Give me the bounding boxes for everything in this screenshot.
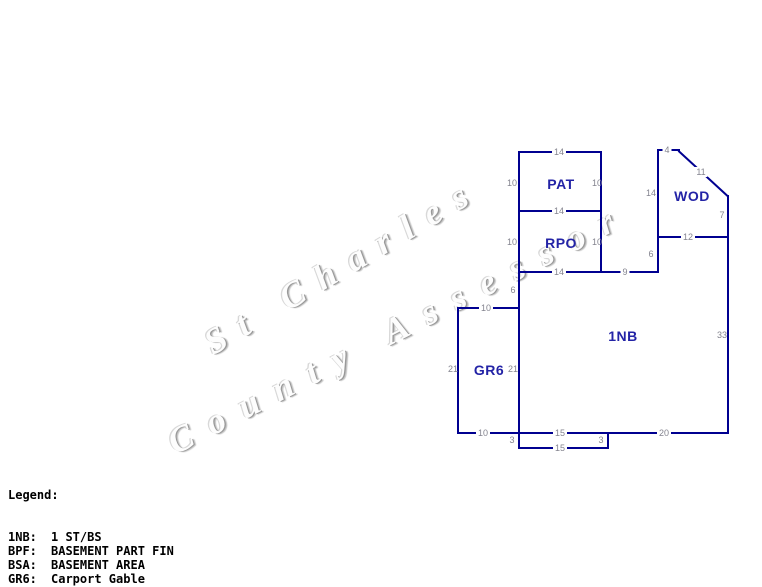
legend-row: BSA:BASEMENT AREA [8,558,174,572]
dimension-label: 10 [592,178,602,188]
legend-row: 1NB:1 ST/BS [8,530,174,544]
sketch-line [600,151,602,273]
legend-abbr: GR6: [8,572,51,586]
sketch-line [607,432,609,449]
area-label-gr6: GR6 [474,362,504,378]
legend: Legend: 1NB:1 ST/BSBPF:BASEMENT PART FIN… [8,460,174,587]
dimension-label: 21 [448,364,458,374]
legend-desc: 1 ST/BS [51,530,102,544]
dimension-label: 9 [620,267,629,277]
dimension-label: 10 [507,237,517,247]
dimension-label: 20 [657,428,671,438]
watermark-line2: County Assessor [160,192,637,463]
dimension-label: 21 [508,364,518,374]
area-label-wod: WOD [674,188,710,204]
dimension-label: 15 [553,443,567,453]
legend-abbr: BPF: [8,544,51,558]
dimension-label: 10 [592,237,602,247]
area-label-pat: PAT [547,176,574,192]
sketch-line [727,195,729,434]
assessor-sketch-page: St Charles County Assessor 1410101410101… [0,0,762,587]
watermark-line1: St Charles [196,167,489,363]
dimension-label: 6 [510,285,515,295]
legend-row: BPF:BASEMENT PART FIN [8,544,174,558]
legend-abbr: 1NB: [8,530,51,544]
dimension-label: 4 [662,145,671,155]
area-label-rpo: RPO [545,235,577,251]
dimension-label: 10 [507,178,517,188]
area-label-1nb: 1NB [608,328,638,344]
sketch-line [518,271,659,273]
legend-desc: BASEMENT AREA [51,558,145,572]
legend-desc: BASEMENT PART FIN [51,544,174,558]
dimension-label: 10 [479,303,493,313]
dimension-label: 6 [648,249,653,259]
legend-desc: Carport Gable [51,572,145,586]
dimension-label: 33 [717,330,727,340]
dimension-label: 11 [694,167,707,177]
sketch-line [457,432,729,434]
legend-title: Legend: [8,488,174,502]
dimension-label: 3 [509,435,514,445]
dimension-label: 14 [646,188,656,198]
dimension-label: 10 [476,428,490,438]
dimension-label: 3 [598,435,603,445]
sketch-line [657,149,659,273]
sketch-line [518,151,520,449]
dimension-label: 7 [719,210,724,220]
dimension-label: 15 [553,428,567,438]
dimension-label: 14 [552,206,566,216]
legend-abbr: BSA: [8,558,51,572]
dimension-label: 14 [552,267,566,277]
dimension-label: 14 [552,147,566,157]
dimension-label: 12 [681,232,695,242]
legend-row: GR6:Carport Gable [8,572,174,586]
